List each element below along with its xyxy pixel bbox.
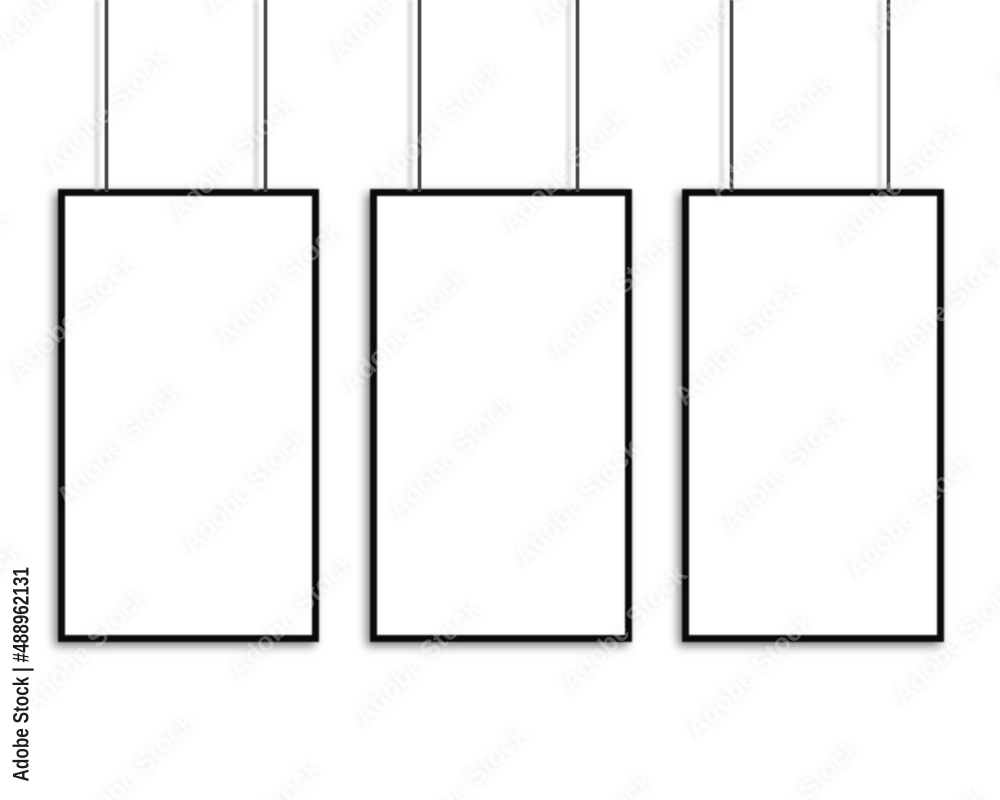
svg-text:Adobe Stock: Adobe Stock: [0, 0, 129, 54]
svg-text:Adobe Stock: Adobe Stock: [336, 260, 475, 399]
svg-text:Adobe Stock: Adobe Stock: [63, 705, 202, 800]
svg-text:Adobe Stock: Adobe Stock: [728, 731, 867, 800]
svg-text:Adobe Stock: Adobe Stock: [176, 420, 315, 559]
svg-text:Adobe Stock: Adobe Stock: [395, 718, 534, 800]
svg-text:Adobe Stock: Adobe Stock: [3, 247, 142, 386]
svg-text:Adobe Stock: Adobe Stock: [16, 580, 155, 719]
svg-text:Adobe Stock: Adobe Stock: [542, 226, 681, 365]
svg-text:Adobe Stock: Adobe Stock: [530, 0, 669, 32]
svg-text:Adobe Stock: Adobe Stock: [715, 399, 854, 538]
svg-text:Adobe Stock: Adobe Stock: [197, 0, 336, 20]
svg-text:Adobe Stock: Adobe Stock: [828, 113, 967, 252]
svg-text:Adobe Stock: Adobe Stock: [853, 778, 992, 800]
svg-text:Adobe Stock: Adobe Stock: [189, 752, 328, 800]
svg-text:Adobe Stock: Adobe Stock: [521, 765, 660, 800]
svg-text:Adobe Stock: Adobe Stock: [223, 546, 362, 685]
svg-text:Adobe Stock: Adobe Stock: [988, 0, 1000, 92]
svg-text:Adobe Stock: Adobe Stock: [50, 373, 189, 512]
svg-text:Adobe Stock: Adobe Stock: [370, 54, 509, 193]
svg-text:Adobe Stock: Adobe Stock: [37, 41, 176, 180]
svg-text:Adobe Stock | #488962131: Adobe Stock | #488962131: [9, 567, 34, 781]
svg-text:Adobe Stock: Adobe Stock: [887, 571, 1000, 710]
svg-text:Adobe Stock: Adobe Stock: [210, 213, 349, 352]
svg-text:Adobe Stock: Adobe Stock: [655, 0, 794, 79]
svg-text:Adobe Stock: Adobe Stock: [163, 87, 302, 226]
svg-text:Adobe Stock: Adobe Stock: [875, 239, 1000, 378]
svg-text:Adobe Stock: Adobe Stock: [349, 592, 488, 731]
svg-text:Adobe Stock: Adobe Stock: [668, 273, 807, 412]
svg-text:Adobe Stock: Adobe Stock: [681, 605, 820, 744]
svg-text:Adobe Stock: Adobe Stock: [841, 445, 980, 584]
svg-text:Adobe Stock: Adobe Stock: [382, 386, 521, 525]
svg-text:Adobe Stock: Adobe Stock: [496, 100, 635, 239]
svg-text:Adobe Stock: Adobe Stock: [702, 66, 841, 205]
svg-text:Adobe Stock: Adobe Stock: [555, 558, 694, 697]
svg-text:Adobe Stock: Adobe Stock: [323, 0, 462, 66]
svg-text:Adobe Stock: Adobe Stock: [0, 201, 16, 340]
svg-text:Adobe Stock: Adobe Stock: [862, 0, 1000, 45]
svg-text:Adobe Stock: Adobe Stock: [508, 433, 647, 572]
